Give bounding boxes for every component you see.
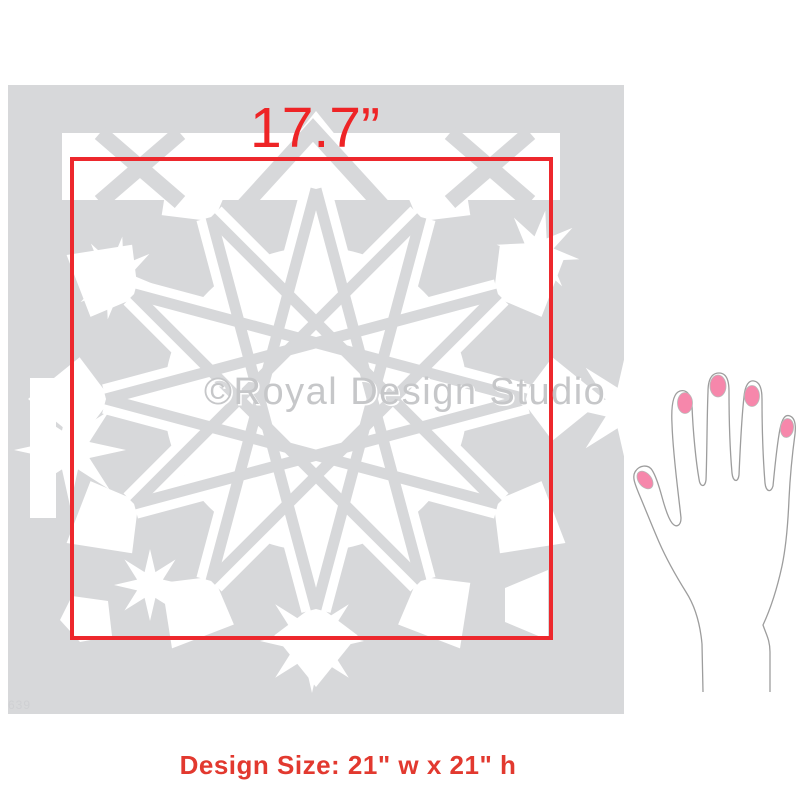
design-size-label: Design Size: 21" w x 21" h bbox=[0, 750, 696, 781]
product-image: 17.7” ©Royal Design Studio 639 Design Si… bbox=[0, 0, 800, 800]
hand-illustration bbox=[634, 373, 796, 692]
sku-label: 639 bbox=[8, 698, 31, 712]
hand-outline bbox=[634, 373, 796, 692]
ring-nail bbox=[745, 386, 760, 407]
middle-nail bbox=[710, 375, 726, 397]
width-measurement-label: 17.7” bbox=[250, 95, 380, 161]
watermark-text: ©Royal Design Studio bbox=[204, 371, 606, 414]
index-nail bbox=[678, 393, 693, 414]
